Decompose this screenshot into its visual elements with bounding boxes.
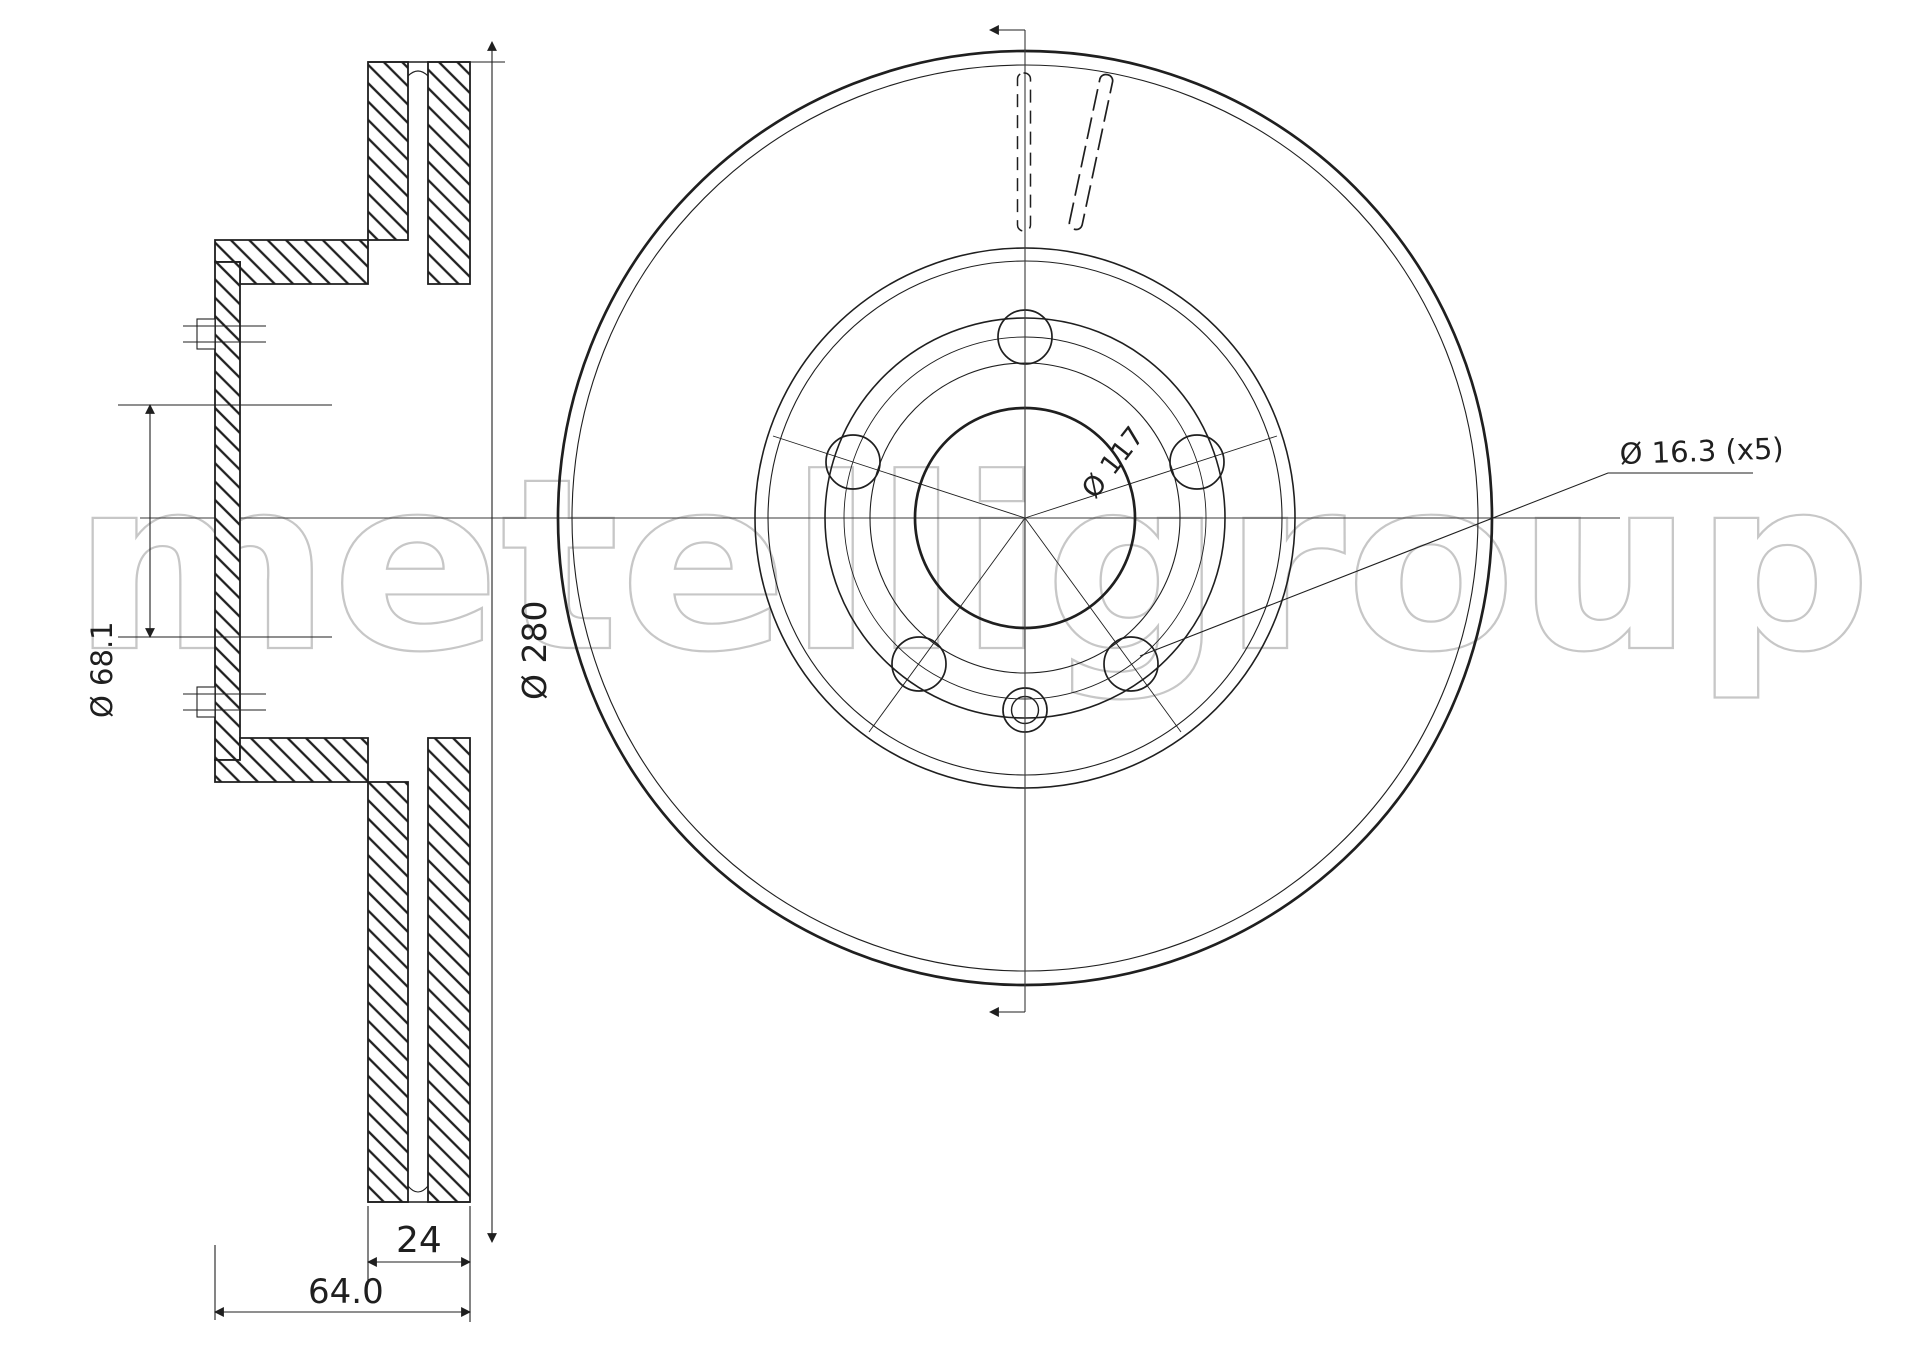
thickness-label: 24 — [396, 1220, 442, 1261]
bolt-hole-label: Ø 16.3 (x5) — [1619, 431, 1784, 471]
friction-ring-bottom — [368, 738, 470, 1202]
hat-wall — [215, 262, 240, 760]
outboard-plate-bottom — [368, 782, 408, 1202]
inboard-plate-bottom — [428, 738, 470, 1202]
stud-hole-section-upper — [197, 319, 215, 349]
inboard-plate-top — [428, 62, 470, 284]
brake-disc-technical-drawing: metelligroup — [0, 0, 1920, 1359]
wheel-studs — [1018, 73, 1114, 231]
stud-hole-section-lower — [197, 687, 215, 717]
wheel-stud-tilted — [1068, 73, 1114, 230]
height-label: 64.0 — [308, 1272, 384, 1312]
friction-ring-top — [368, 62, 470, 284]
vent-slot-cap-top — [408, 71, 428, 76]
wheel-stud-straight — [1018, 73, 1031, 231]
outer-diameter-label: Ø 280 — [515, 601, 554, 700]
vent-slot-cap-bottom — [408, 1186, 428, 1192]
outboard-plate-top — [368, 62, 408, 240]
technical-drawing-page: metelligroup — [0, 0, 1920, 1359]
bore-diameter-label: Ø 68.1 — [85, 621, 119, 718]
